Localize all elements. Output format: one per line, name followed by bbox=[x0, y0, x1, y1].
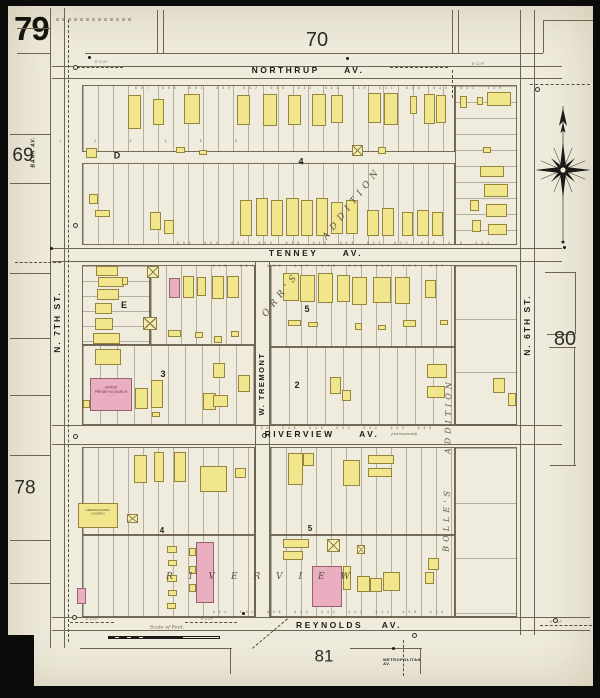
map-line bbox=[545, 272, 575, 273]
map-line bbox=[543, 20, 544, 53]
water-pipe-note: 6" C.I.P. bbox=[95, 60, 107, 64]
frame-building-footprint bbox=[378, 325, 386, 330]
frame-building-footprint bbox=[288, 95, 301, 125]
frame-building-footprint bbox=[174, 452, 186, 482]
frame-building-footprint bbox=[484, 184, 508, 197]
frame-building-footprint bbox=[508, 393, 516, 406]
block-label-3: 3 bbox=[160, 370, 165, 380]
block-label-e: E bbox=[121, 301, 127, 311]
frame-building-footprint bbox=[427, 386, 445, 398]
frame-building-footprint bbox=[199, 150, 207, 155]
frame-building-footprint bbox=[425, 280, 436, 298]
frame-building-footprint bbox=[493, 378, 505, 393]
not-improved-note: (not improved) bbox=[391, 432, 417, 436]
frame-building-footprint bbox=[152, 412, 160, 417]
hydrant-dot-icon bbox=[346, 57, 349, 60]
frame-building-footprint bbox=[153, 99, 164, 125]
frame-building-footprint bbox=[368, 455, 394, 464]
map-line bbox=[575, 272, 576, 334]
frame-building-footprint bbox=[436, 95, 446, 123]
map-stage: 79 NORTHRUP AV.TENNEY AV.RIVERVIEW AV.RE… bbox=[0, 0, 600, 698]
frame-building-footprint bbox=[271, 200, 283, 236]
frame-building-footprint bbox=[167, 546, 177, 553]
frame-building-footprint bbox=[383, 572, 400, 591]
frame-building-footprint bbox=[308, 322, 318, 327]
frame-building-footprint bbox=[483, 147, 491, 153]
frame-building-footprint bbox=[382, 208, 394, 236]
frame-building-footprint bbox=[150, 212, 161, 230]
frame-building-footprint bbox=[331, 95, 343, 123]
utility-dash-line bbox=[15, 262, 61, 263]
utility-dash-line bbox=[452, 70, 453, 98]
frame-building-footprint bbox=[184, 94, 200, 124]
frame-building-footprint bbox=[95, 318, 113, 330]
frame-building-footprint bbox=[200, 466, 227, 492]
map-line bbox=[10, 183, 50, 184]
frame-building-footprint bbox=[227, 276, 239, 298]
frame-building-footprint bbox=[487, 92, 511, 106]
utility-dash-line bbox=[530, 84, 590, 85]
frame-building-footprint bbox=[367, 210, 379, 236]
map-line bbox=[85, 53, 543, 54]
frame-building-footprint bbox=[486, 204, 507, 217]
valve-circle-icon bbox=[412, 633, 417, 638]
frame-building-footprint bbox=[167, 603, 176, 609]
sanborn-map-sheet: { "colors":{"paper":"#f0ecdd","ink":"#23… bbox=[0, 0, 600, 698]
frame-building-footprint bbox=[237, 95, 250, 125]
frame-building-footprint bbox=[283, 551, 303, 560]
frame-building-footprint bbox=[195, 332, 203, 338]
valve-circle-icon bbox=[72, 615, 77, 620]
map-line bbox=[10, 583, 50, 584]
block-label-4-top: 4 bbox=[298, 157, 303, 167]
utility-dash-line bbox=[68, 20, 69, 642]
block-label-2: 2 bbox=[294, 381, 299, 391]
frame-building-footprint bbox=[283, 539, 309, 548]
hydrant-dot-icon bbox=[88, 56, 91, 59]
frame-building-footprint bbox=[440, 320, 448, 325]
water-pipe-note: 6" C.I.P. bbox=[86, 617, 98, 621]
map-line bbox=[550, 465, 576, 466]
frame-building-footprint bbox=[477, 97, 483, 105]
hydrant-dot-icon bbox=[50, 247, 53, 250]
map-line bbox=[458, 10, 459, 53]
frame-building-footprint bbox=[83, 400, 90, 408]
lot-block bbox=[455, 85, 517, 245]
page-ref-70: 70 bbox=[306, 30, 328, 52]
frame-building-footprint bbox=[89, 194, 98, 204]
riverview-addition-label: RIVERVIEW bbox=[166, 572, 366, 582]
utility-dash-line bbox=[390, 67, 448, 68]
frame-building-footprint bbox=[213, 363, 225, 378]
block-label-5-mid: 5 bbox=[304, 305, 309, 315]
frame-building-footprint bbox=[197, 277, 206, 296]
frame-building-footprint bbox=[240, 200, 252, 236]
scale-bar-segment bbox=[144, 636, 182, 639]
map-line bbox=[10, 540, 50, 541]
frame-building-footprint bbox=[337, 275, 350, 302]
utility-dash-line bbox=[252, 618, 288, 648]
frame-building-footprint bbox=[300, 275, 315, 302]
frame-building-footprint bbox=[95, 349, 121, 365]
crossed-outbuilding-icon bbox=[357, 545, 365, 554]
block-label-4-bottom: 4 bbox=[160, 527, 164, 536]
page-corner-cut bbox=[0, 635, 34, 698]
map-line bbox=[52, 617, 590, 618]
map-line bbox=[10, 338, 50, 339]
map-line bbox=[80, 648, 232, 649]
hydrant-dot-icon bbox=[392, 647, 395, 650]
block-label-5-bottom: 5 bbox=[308, 525, 312, 534]
map-line bbox=[10, 273, 50, 274]
frame-building-footprint bbox=[410, 96, 417, 114]
frame-building-footprint bbox=[395, 277, 410, 304]
map-line bbox=[52, 444, 562, 445]
map-line bbox=[17, 53, 50, 54]
frame-building-footprint bbox=[428, 558, 439, 570]
frame-building-footprint bbox=[134, 455, 147, 483]
frame-building-footprint bbox=[378, 147, 386, 154]
valve-circle-icon bbox=[73, 434, 78, 439]
map-line bbox=[10, 134, 50, 135]
frame-building-footprint bbox=[288, 453, 303, 485]
frame-building-footprint bbox=[432, 212, 443, 236]
crossed-outbuilding-icon bbox=[327, 539, 340, 552]
frame-building-footprint bbox=[164, 220, 174, 234]
frame-building-footprint bbox=[303, 453, 314, 466]
frame-building-footprint bbox=[352, 277, 367, 305]
frame-building-footprint bbox=[301, 200, 313, 236]
metropolitan-av-label: METROPOLITAN AV. bbox=[383, 658, 421, 667]
map-line bbox=[255, 261, 256, 617]
crossed-outbuilding-icon bbox=[143, 317, 157, 330]
scale-label: Scale of Feet. bbox=[150, 624, 185, 630]
frame-building-footprint bbox=[470, 200, 479, 211]
map-line bbox=[10, 395, 50, 396]
frame-building-footprint bbox=[417, 210, 429, 236]
map-line bbox=[452, 10, 453, 53]
map-line bbox=[64, 8, 65, 648]
house-number-row: 652 650 648 646 644 642 640 638 636 bbox=[213, 610, 447, 614]
frame-building-footprint bbox=[214, 336, 222, 343]
water-pipe-note: 6" C.I.P. bbox=[550, 620, 562, 624]
sheet-number: 79 bbox=[14, 10, 49, 48]
valve-circle-icon bbox=[535, 87, 540, 92]
frame-building-footprint bbox=[122, 277, 128, 285]
utility-dash-line bbox=[185, 622, 237, 623]
w-tremont-label: W. TREMONT bbox=[258, 353, 266, 416]
frame-building-footprint bbox=[183, 276, 194, 298]
crossed-outbuilding-icon bbox=[147, 266, 159, 278]
frame-building-footprint bbox=[312, 94, 326, 126]
map-line bbox=[50, 8, 51, 648]
frame-building-footprint bbox=[460, 96, 467, 108]
frame-building-footprint bbox=[128, 95, 141, 129]
frame-building-footprint bbox=[424, 94, 435, 124]
frame-building-footprint bbox=[212, 276, 224, 299]
frame-building-footprint bbox=[97, 289, 119, 300]
united-presbyterian-church-label: UNITED PRESBY'N CHURCH · · · · · bbox=[95, 386, 128, 399]
frame-building-footprint bbox=[402, 212, 413, 236]
frame-building-footprint bbox=[238, 375, 250, 392]
frame-building-footprint bbox=[189, 548, 196, 556]
reynolds-av-label: REYNOLDS AV. bbox=[296, 621, 402, 630]
frame-building-footprint bbox=[95, 303, 112, 314]
frame-building-footprint bbox=[135, 388, 148, 409]
frame-building-footprint bbox=[168, 560, 177, 566]
map-line bbox=[350, 648, 422, 649]
frame-building-footprint bbox=[213, 395, 228, 407]
page-ref-78: 78 bbox=[14, 479, 35, 500]
compass-rose-icon bbox=[531, 96, 595, 248]
frame-building-footprint bbox=[472, 220, 481, 232]
frame-building-footprint bbox=[168, 330, 181, 337]
water-pipe-note: 6" C.I.P. bbox=[472, 62, 484, 66]
house-number-row: 650 648 646 644 642 640 638 bbox=[255, 426, 435, 430]
brick-building-footprint bbox=[169, 278, 180, 298]
lot-block bbox=[455, 447, 517, 617]
page-ref-80: 80 bbox=[554, 329, 576, 351]
frame-building-footprint bbox=[368, 468, 392, 477]
valve-circle-icon bbox=[73, 65, 78, 70]
map-line bbox=[10, 455, 50, 456]
scale-bar bbox=[108, 636, 224, 639]
water-pipe-note: 6" C.I.P. bbox=[201, 617, 213, 621]
frame-building-footprint bbox=[189, 584, 196, 592]
riverview-av-label: RIVERVIEW AV. bbox=[265, 430, 380, 439]
utility-dash-line bbox=[70, 622, 114, 623]
scale-bar-segment bbox=[182, 636, 220, 639]
frame-building-footprint bbox=[96, 266, 118, 276]
house-number-row: 657 653 651 649 647 645 643 641 639 637 … bbox=[135, 86, 505, 90]
map-line bbox=[163, 10, 164, 53]
map-line bbox=[543, 20, 593, 21]
frame-building-footprint bbox=[330, 377, 341, 394]
map-line bbox=[157, 10, 158, 53]
frame-building-footprint bbox=[151, 380, 163, 408]
valve-circle-icon bbox=[73, 223, 78, 228]
frame-building-footprint bbox=[384, 93, 398, 125]
frame-building-footprint bbox=[286, 198, 299, 236]
n-7th-st-label: N. 7TH ST. bbox=[53, 291, 62, 353]
page-ref-69: 69 bbox=[12, 146, 33, 167]
northrup-av-label: NORTHRUP AV. bbox=[252, 66, 365, 75]
frame-building-footprint bbox=[256, 198, 268, 236]
frame-building-footprint bbox=[263, 94, 277, 126]
frame-building-footprint bbox=[403, 320, 416, 327]
page-ref-81: 81 bbox=[315, 648, 334, 667]
block-label-d: D bbox=[114, 151, 121, 161]
frame-building-footprint bbox=[95, 210, 110, 217]
frame-building-footprint bbox=[288, 320, 301, 326]
house-number-row: 656 654 652 650 648 646 644 642 640 638 … bbox=[177, 241, 493, 245]
map-line bbox=[52, 78, 562, 79]
frame-building-footprint bbox=[231, 331, 239, 337]
lot-block bbox=[82, 163, 455, 245]
german-evangelical-church-label: GERMAN EVANG. CHURCH · · · · · bbox=[85, 508, 110, 519]
frame-building-footprint bbox=[480, 166, 504, 177]
crossed-outbuilding-icon bbox=[127, 514, 138, 523]
frame-building-footprint bbox=[98, 277, 124, 287]
frame-building-footprint bbox=[425, 572, 434, 584]
house-number-row: 653 651 649 647 645 643 641 639 637 bbox=[213, 264, 447, 268]
frame-building-footprint bbox=[488, 224, 507, 235]
frame-building-footprint bbox=[342, 390, 351, 401]
house-number-row: 1 2 3 4 5 6 bbox=[59, 139, 240, 143]
n-6th-st-label: N. 6TH ST. bbox=[523, 294, 532, 356]
map-line bbox=[230, 648, 231, 674]
map-line bbox=[520, 10, 521, 635]
frame-building-footprint bbox=[370, 578, 382, 592]
brick-building-footprint bbox=[77, 588, 86, 604]
frame-building-footprint bbox=[93, 333, 120, 344]
frame-building-footprint bbox=[176, 147, 185, 153]
frame-building-footprint bbox=[154, 452, 164, 482]
frame-building-footprint bbox=[368, 93, 381, 123]
frame-building-footprint bbox=[318, 273, 333, 303]
frame-building-footprint bbox=[355, 323, 362, 330]
map-line bbox=[574, 347, 575, 465]
frame-building-footprint bbox=[343, 460, 360, 486]
map-line bbox=[17, 28, 50, 29]
frame-building-footprint bbox=[427, 364, 447, 378]
frame-building-footprint bbox=[235, 468, 246, 478]
frame-building-footprint bbox=[86, 148, 97, 158]
frame-building-footprint bbox=[373, 277, 391, 303]
crossed-outbuilding-icon bbox=[352, 145, 363, 156]
utility-dash-line bbox=[77, 67, 123, 68]
utility-dash-line bbox=[540, 625, 592, 626]
frame-building-footprint bbox=[168, 590, 177, 596]
